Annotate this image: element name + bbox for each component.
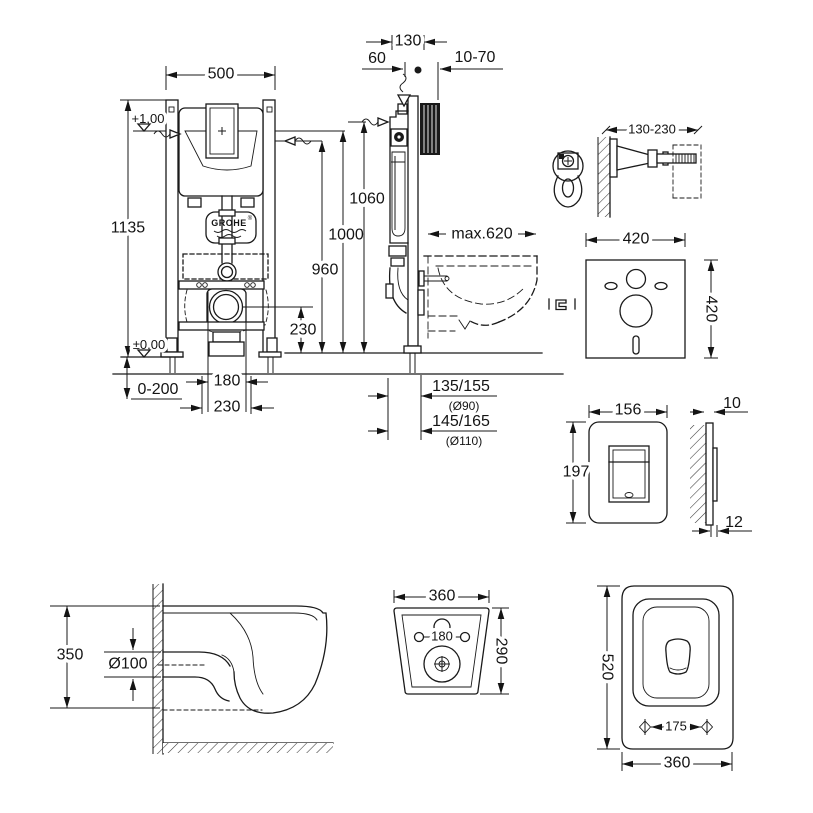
dashed-bowl-outline	[424, 256, 537, 338]
dim-1000: 1000	[328, 227, 364, 244]
foot-left	[167, 338, 177, 352]
wall-hatch	[598, 137, 610, 217]
dim-bolt-230: 230	[214, 399, 241, 416]
bowl-rear-outline	[394, 608, 489, 694]
dashed-rail-section	[673, 145, 701, 198]
reference-dot-icon	[415, 67, 422, 74]
dim-plate-height: 197	[563, 464, 590, 481]
dim-outlet-90-dia: (Ø90)	[449, 399, 480, 413]
plate-side-profile	[706, 423, 713, 525]
toilet-side-view: 350 Ø100	[50, 584, 333, 754]
level-zero-icon	[138, 350, 150, 357]
frame-side-view: 130 60 10-70 max.620 135/155 (Ø90) 145/1…	[362, 33, 537, 449]
foot-right	[267, 338, 277, 352]
toilet-top-view: 175 520 360	[597, 586, 733, 772]
floor-hatch-band	[163, 743, 333, 753]
dim-top-bolts: 175	[665, 719, 687, 734]
wall-bracket-detail: 130-230	[553, 122, 702, 218]
flush-plate	[589, 422, 667, 523]
bracket-plate	[610, 139, 617, 177]
dim-drain-height: 230	[290, 322, 317, 339]
dim-bolt-180: 180	[214, 373, 241, 390]
dim-1060: 1060	[349, 191, 385, 208]
drain-outlet	[213, 332, 240, 342]
bowl-side-profile	[158, 606, 327, 713]
technical-drawing-page: GROHE ®	[0, 0, 813, 813]
threaded-rod	[657, 154, 696, 163]
dim-rear-width: 360	[429, 588, 456, 605]
level-plus-icon	[138, 124, 150, 131]
dim-rear-height: 290	[493, 638, 510, 665]
brand-label: GROHE	[211, 218, 247, 228]
dim-plate-depth: 12	[725, 514, 743, 531]
dim-bracket-range: 130-230	[628, 122, 676, 137]
drain-socket	[210, 291, 243, 324]
bracket-arm	[617, 146, 650, 170]
dim-frame-width: 500	[208, 66, 235, 83]
crossbar-upper	[179, 281, 264, 289]
dim-mat-height: 420	[703, 296, 720, 323]
wall-outlet-stub	[418, 290, 424, 315]
dim-bowl-height: 350	[57, 647, 84, 664]
side-rail	[408, 96, 418, 346]
dim-plate-thickness: 10	[723, 395, 741, 412]
wall-anchor-block	[420, 103, 440, 155]
brand-reg-mark: ®	[248, 215, 253, 222]
frame-rail-right	[263, 100, 275, 355]
fixing-plug-icon	[556, 300, 566, 310]
frame-front-view: GROHE ®	[111, 66, 385, 416]
plate-wall-hatch	[690, 425, 706, 523]
dim-60: 60	[368, 50, 386, 67]
dim-top-width: 360	[664, 755, 691, 772]
dim-outlet-110: 145/165	[432, 413, 490, 430]
flush-pipe-joint	[218, 263, 236, 281]
dim-rear-bolts: 180	[431, 629, 453, 644]
sound-insulation-mat: 420 420	[549, 231, 720, 359]
frame-rail-left	[166, 100, 178, 355]
wall-hatch-band	[153, 584, 163, 754]
supply-squiggle-right-icon	[285, 137, 295, 145]
dim-mat-width: 420	[623, 231, 650, 248]
dim-depth-130: 130	[395, 33, 422, 50]
crossbar-lower	[179, 322, 264, 330]
dim-drain-diameter: Ø100	[108, 656, 147, 673]
dim-outlet-90: 135/155	[432, 378, 490, 395]
dim-wall-10-70: 10-70	[455, 49, 496, 66]
dim-feet-range: 0-200	[138, 381, 179, 398]
dim-top-length: 520	[599, 654, 616, 681]
dim-plate-width: 156	[615, 402, 642, 419]
toilet-rear-view: 180 360 290	[394, 588, 510, 695]
dim-outlet-110-dia: (Ø110)	[446, 434, 482, 448]
dim-frame-height: 1135	[111, 220, 146, 237]
mat-outline	[586, 260, 685, 358]
installation-drawing: GROHE ®	[0, 0, 813, 813]
flush-plate-views: 156 197 10 12	[563, 395, 752, 537]
dim-max-620: max.620	[451, 226, 512, 243]
dim-960: 960	[312, 262, 339, 279]
